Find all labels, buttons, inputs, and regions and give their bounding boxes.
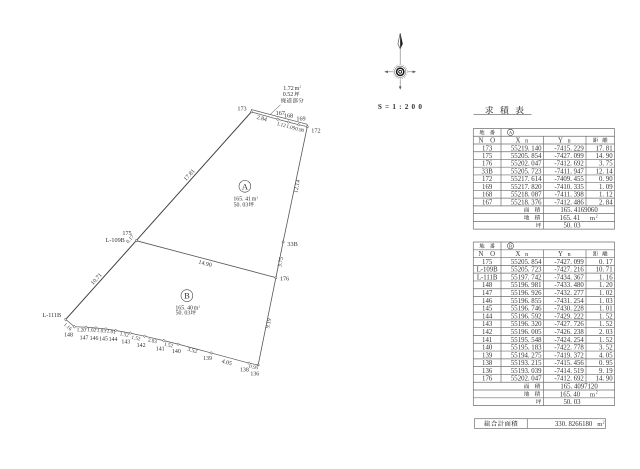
svg-text:55197. 742: 55197. 742 bbox=[511, 274, 542, 281]
svg-text:L-109B: L-109B bbox=[477, 267, 499, 274]
svg-text:1. 01: 1. 01 bbox=[599, 306, 613, 313]
svg-text:55195. 183: 55195. 183 bbox=[511, 345, 542, 352]
svg-text:L-109B: L-109B bbox=[106, 237, 125, 244]
svg-text:n: n bbox=[568, 139, 571, 145]
svg-text:Y: Y bbox=[558, 251, 563, 258]
svg-text:168: 168 bbox=[482, 192, 493, 199]
svg-text:2: 2 bbox=[603, 420, 605, 424]
svg-text:55218. 087: 55218. 087 bbox=[511, 192, 542, 199]
svg-text:50. 03: 50. 03 bbox=[234, 202, 249, 208]
svg-text:169: 169 bbox=[482, 184, 493, 191]
svg-text:10. 71: 10. 71 bbox=[596, 267, 613, 274]
svg-text:176: 176 bbox=[482, 376, 493, 383]
svg-text:-7426. 238: -7426. 238 bbox=[554, 329, 584, 336]
svg-text:140: 140 bbox=[172, 349, 181, 355]
svg-text:1. 52: 1. 52 bbox=[599, 337, 613, 344]
svg-text:146: 146 bbox=[482, 298, 493, 305]
svg-text:55219. 140: 55219. 140 bbox=[511, 145, 542, 152]
svg-text:-7432. 277: -7432. 277 bbox=[554, 290, 584, 297]
svg-text:55193. 215: 55193. 215 bbox=[511, 360, 542, 367]
svg-text:176: 176 bbox=[482, 161, 493, 168]
svg-text:50. 03: 50. 03 bbox=[564, 223, 582, 230]
svg-text:-7427. 099: -7427. 099 bbox=[554, 259, 584, 266]
svg-text:140: 140 bbox=[482, 345, 493, 352]
svg-text:55218. 376: 55218. 376 bbox=[511, 199, 542, 206]
svg-text:A: A bbox=[242, 181, 249, 191]
svg-text:B: B bbox=[184, 291, 190, 301]
svg-text:55202. 047: 55202. 047 bbox=[511, 161, 542, 168]
svg-text:n: n bbox=[568, 252, 571, 258]
svg-text:50. 03: 50. 03 bbox=[176, 311, 191, 317]
svg-text:1. 02: 1. 02 bbox=[599, 290, 613, 297]
svg-text:148: 148 bbox=[64, 332, 73, 338]
svg-text:55205. 854: 55205. 854 bbox=[511, 259, 542, 266]
svg-text:-7431. 254: -7431. 254 bbox=[554, 298, 584, 305]
svg-text:143: 143 bbox=[121, 340, 130, 346]
svg-text:146: 146 bbox=[90, 336, 99, 342]
svg-text:142: 142 bbox=[482, 329, 493, 336]
svg-text:145: 145 bbox=[482, 306, 493, 313]
svg-text:141: 141 bbox=[156, 347, 165, 353]
svg-text:55196. 981: 55196. 981 bbox=[511, 282, 542, 289]
svg-text:1. 52: 1. 52 bbox=[599, 313, 613, 320]
svg-text:139: 139 bbox=[482, 352, 493, 359]
svg-text:N: N bbox=[479, 251, 484, 258]
svg-text:55196. 592: 55196. 592 bbox=[511, 313, 542, 320]
svg-text:-7412. 692: -7412. 692 bbox=[554, 161, 584, 168]
svg-text:3. 52: 3. 52 bbox=[599, 345, 613, 352]
svg-text:1. 20: 1. 20 bbox=[599, 282, 613, 289]
svg-text:1. 52: 1. 52 bbox=[599, 321, 613, 328]
svg-text:0. 90: 0. 90 bbox=[599, 176, 613, 183]
svg-text:55217. 614: 55217. 614 bbox=[511, 176, 542, 183]
svg-text:4. 05: 4. 05 bbox=[599, 352, 613, 359]
svg-text:141: 141 bbox=[482, 337, 492, 344]
svg-text:-7411. 947: -7411. 947 bbox=[555, 168, 585, 175]
svg-text:-7414. 519: -7414. 519 bbox=[554, 368, 584, 375]
svg-text:n: n bbox=[525, 139, 528, 145]
svg-text:2. 84: 2. 84 bbox=[599, 199, 613, 206]
svg-text:0.52: 0.52 bbox=[283, 92, 294, 98]
svg-text:-7411. 398: -7411. 398 bbox=[555, 192, 585, 199]
svg-text:9. 19: 9. 19 bbox=[599, 368, 613, 375]
svg-text:55196. 926: 55196. 926 bbox=[511, 290, 542, 297]
svg-text:B: B bbox=[509, 244, 512, 249]
svg-text:2: 2 bbox=[596, 391, 598, 395]
svg-text:165. 4169060: 165. 4169060 bbox=[560, 207, 598, 214]
svg-text:L-111B: L-111B bbox=[477, 274, 498, 281]
svg-text:55217. 820: 55217. 820 bbox=[511, 184, 542, 191]
svg-text:1. 03: 1. 03 bbox=[599, 298, 613, 305]
svg-text:55205. 723: 55205. 723 bbox=[511, 267, 542, 274]
svg-text:55193. 039: 55193. 039 bbox=[511, 368, 542, 375]
svg-text:n: n bbox=[525, 252, 528, 258]
svg-text:55196. 746: 55196. 746 bbox=[511, 306, 542, 313]
svg-text:-7430. 228: -7430. 228 bbox=[554, 306, 584, 313]
svg-text:147: 147 bbox=[80, 335, 89, 341]
svg-text:50. 03: 50. 03 bbox=[564, 399, 582, 406]
svg-text:55196. 320: 55196. 320 bbox=[511, 321, 542, 328]
svg-text:1. 12: 1. 12 bbox=[599, 192, 613, 199]
svg-text:173: 173 bbox=[237, 106, 246, 113]
svg-text:136: 136 bbox=[482, 368, 493, 375]
svg-text:-7409. 455: -7409. 455 bbox=[554, 176, 584, 183]
svg-text:-7427. 216: -7427. 216 bbox=[554, 267, 584, 274]
svg-text:-7422. 778: -7422. 778 bbox=[554, 345, 584, 352]
svg-text:33B: 33B bbox=[287, 241, 297, 248]
svg-text:X: X bbox=[516, 251, 521, 258]
svg-text:55196. 005: 55196. 005 bbox=[511, 329, 542, 336]
svg-text:330. 8266180: 330. 8266180 bbox=[555, 421, 593, 428]
svg-text:-7433. 480: -7433. 480 bbox=[554, 282, 584, 289]
svg-text:-7410. 335: -7410. 335 bbox=[554, 184, 584, 191]
svg-text:-7412. 486: -7412. 486 bbox=[554, 199, 584, 206]
svg-text:55194. 275: 55194. 275 bbox=[511, 352, 542, 359]
svg-text:-7424. 254: -7424. 254 bbox=[554, 337, 584, 344]
svg-text:-7429. 222: -7429. 222 bbox=[554, 313, 584, 320]
svg-text:176: 176 bbox=[280, 276, 289, 283]
svg-text:Y: Y bbox=[558, 138, 563, 145]
svg-text:142: 142 bbox=[137, 343, 146, 349]
svg-text:165. 41: 165. 41 bbox=[560, 215, 580, 222]
svg-text:X: X bbox=[516, 138, 521, 145]
svg-text:55202. 047: 55202. 047 bbox=[511, 376, 542, 383]
svg-text:138: 138 bbox=[482, 360, 493, 367]
svg-text:-7415. 229: -7415. 229 bbox=[554, 145, 584, 152]
svg-text:S=1:200: S=1:200 bbox=[378, 103, 425, 111]
svg-text:3. 75: 3. 75 bbox=[599, 161, 613, 168]
svg-text:12. 14: 12. 14 bbox=[596, 168, 614, 175]
svg-text:33B: 33B bbox=[481, 168, 493, 175]
svg-text:165. 4097120: 165. 4097120 bbox=[560, 384, 598, 391]
svg-text:173: 173 bbox=[482, 145, 493, 152]
svg-text:148: 148 bbox=[482, 282, 493, 289]
svg-text:55205. 723: 55205. 723 bbox=[511, 168, 542, 175]
svg-text:17. 81: 17. 81 bbox=[596, 145, 613, 152]
svg-text:175: 175 bbox=[482, 259, 493, 266]
svg-text:2. 03: 2. 03 bbox=[599, 329, 613, 336]
svg-text:138: 138 bbox=[240, 367, 249, 373]
svg-text:1.02: 1.02 bbox=[87, 327, 97, 334]
svg-text:147: 147 bbox=[482, 290, 493, 297]
svg-text:2: 2 bbox=[300, 85, 302, 89]
svg-text:144: 144 bbox=[109, 337, 118, 343]
svg-text:14. 90: 14. 90 bbox=[596, 153, 614, 160]
svg-text:1.03: 1.03 bbox=[96, 328, 106, 335]
svg-text:168: 168 bbox=[284, 113, 293, 120]
svg-text:172: 172 bbox=[311, 127, 320, 134]
svg-text:145: 145 bbox=[99, 337, 108, 343]
svg-text:14. 90: 14. 90 bbox=[596, 376, 614, 383]
svg-text:0. 95: 0. 95 bbox=[599, 360, 613, 367]
svg-text:-7419. 372: -7419. 372 bbox=[554, 352, 584, 359]
svg-text:55195. 548: 55195. 548 bbox=[511, 337, 542, 344]
svg-text:55196. 855: 55196. 855 bbox=[511, 298, 542, 305]
svg-text:144: 144 bbox=[482, 313, 493, 320]
svg-text:-7434. 367: -7434. 367 bbox=[554, 274, 584, 281]
svg-text:175: 175 bbox=[482, 153, 493, 160]
svg-text:O: O bbox=[490, 251, 495, 258]
svg-text:1. 09: 1. 09 bbox=[599, 184, 613, 191]
svg-text:-7427. 726: -7427. 726 bbox=[554, 321, 584, 328]
svg-text:1.20: 1.20 bbox=[77, 327, 87, 333]
svg-text:1. 16: 1. 16 bbox=[599, 274, 613, 281]
svg-text:2: 2 bbox=[596, 214, 598, 218]
svg-text:N: N bbox=[479, 138, 484, 145]
svg-text:O: O bbox=[490, 138, 495, 145]
svg-text:-7427. 099: -7427. 099 bbox=[554, 153, 584, 160]
svg-text:172: 172 bbox=[482, 176, 493, 183]
svg-text:-7412. 692: -7412. 692 bbox=[554, 376, 584, 383]
svg-text:165. 40: 165. 40 bbox=[560, 391, 581, 398]
svg-text:55205. 854: 55205. 854 bbox=[511, 153, 542, 160]
svg-text:167: 167 bbox=[482, 199, 493, 206]
svg-text:143: 143 bbox=[482, 321, 493, 328]
svg-text:169: 169 bbox=[296, 116, 305, 123]
svg-text:0. 17: 0. 17 bbox=[599, 259, 613, 266]
svg-text:-7415. 456: -7415. 456 bbox=[554, 360, 584, 367]
svg-text:139: 139 bbox=[203, 356, 212, 362]
svg-text:L-111B: L-111B bbox=[42, 312, 61, 319]
svg-text:136: 136 bbox=[250, 372, 259, 378]
